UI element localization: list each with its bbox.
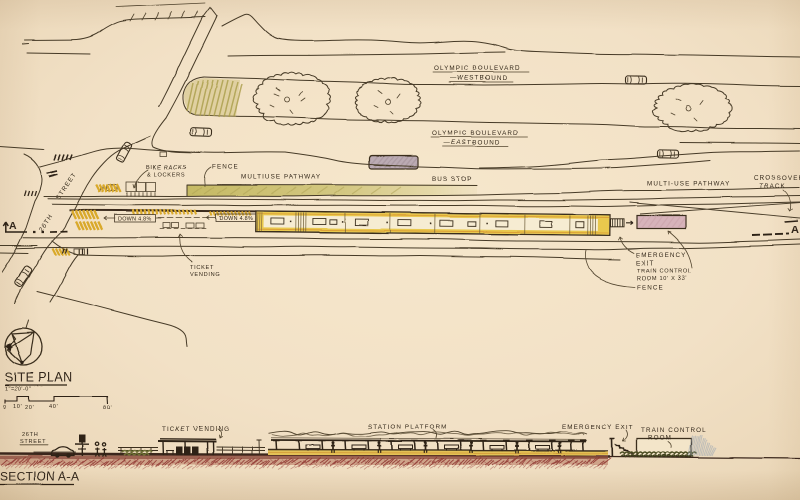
svg-text:MULTIUSE PATHWAY: MULTIUSE PATHWAY xyxy=(241,174,321,181)
svg-text:ROOM 10' X 33': ROOM 10' X 33' xyxy=(637,276,687,282)
svg-text:TICKET VENDING: TICKET VENDING xyxy=(162,426,230,433)
svg-text:BUS STOP: BUS STOP xyxy=(432,176,473,183)
svg-text:BIKE RACKS: BIKE RACKS xyxy=(146,165,187,171)
svg-text:FENCE: FENCE xyxy=(637,285,664,292)
svg-text:20': 20' xyxy=(25,405,34,411)
svg-text:TRACK: TRACK xyxy=(759,183,786,190)
svg-text:EXIT: EXIT xyxy=(636,260,654,267)
svg-text:STATION PLATFORM: STATION PLATFORM xyxy=(368,424,448,431)
svg-text:FENCE: FENCE xyxy=(212,164,239,171)
svg-text:SITE PLAN: SITE PLAN xyxy=(5,371,73,385)
svg-text:TRAIN CONTROL: TRAIN CONTROL xyxy=(637,269,692,275)
svg-text:OLYMPIC BOULEVARD: OLYMPIC BOULEVARD xyxy=(432,130,519,137)
svg-text:EMERGENCY: EMERGENCY xyxy=(636,252,687,259)
svg-text:DOWN 4.8%: DOWN 4.8% xyxy=(118,216,152,222)
svg-text:—EASTBOUND: —EASTBOUND xyxy=(444,140,500,147)
svg-text:A: A xyxy=(791,224,799,236)
svg-text:10': 10' xyxy=(13,404,22,410)
svg-text:80': 80' xyxy=(103,406,112,412)
svg-text:TRAIN CONTROL: TRAIN CONTROL xyxy=(641,427,707,434)
svg-text:SECTION A-A: SECTION A-A xyxy=(0,470,79,484)
svg-text:1"=20'-0": 1"=20'-0" xyxy=(5,387,32,393)
svg-text:MULTI-USE PATHWAY: MULTI-USE PATHWAY xyxy=(647,181,730,188)
svg-text:CROSSOVER: CROSSOVER xyxy=(754,175,800,182)
svg-text:OLYMPIC BOULEVARD: OLYMPIC BOULEVARD xyxy=(434,65,521,72)
svg-text:& LOCKERS: & LOCKERS xyxy=(147,173,185,179)
svg-text:EMERGENCY EXIT: EMERGENCY EXIT xyxy=(562,424,634,431)
svg-text:ROOM: ROOM xyxy=(648,435,672,442)
svg-text:—WESTBOUND: —WESTBOUND xyxy=(450,75,508,82)
svg-text:40': 40' xyxy=(49,405,58,411)
svg-text:0: 0 xyxy=(3,405,7,411)
svg-text:26TH: 26TH xyxy=(22,432,38,438)
svg-text:STREET: STREET xyxy=(20,439,46,445)
svg-text:A: A xyxy=(9,220,17,232)
svg-text:VENDING: VENDING xyxy=(190,272,220,278)
svg-text:DOWN 4.8%: DOWN 4.8% xyxy=(220,216,254,222)
svg-text:TICKET: TICKET xyxy=(190,265,214,271)
